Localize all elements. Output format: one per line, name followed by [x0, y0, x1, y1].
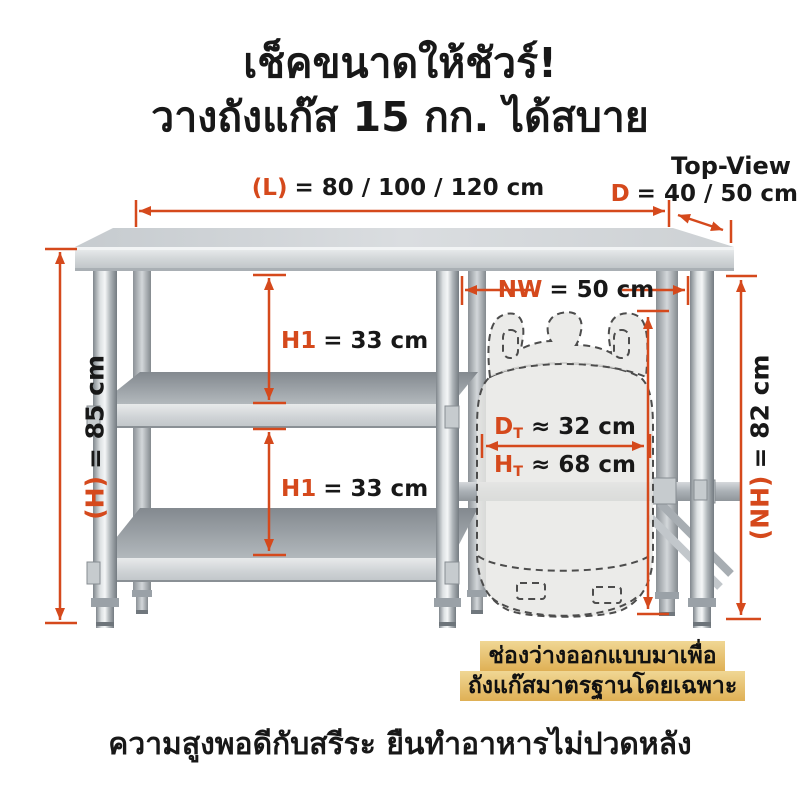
h1-upper-prefix: H1: [281, 328, 316, 354]
tank-diameter-label: DT ≈ 32 cm: [465, 414, 665, 442]
length-prefix: (L): [252, 175, 288, 201]
net-width-value: = 50 cm: [549, 277, 654, 303]
net-height-prefix: (NH): [746, 476, 775, 541]
height-prefix: (H): [81, 476, 110, 520]
length-value: = 80 / 100 / 120 cm: [294, 175, 544, 201]
middle-shelf: [100, 372, 478, 428]
tank-diameter-sym: D: [494, 414, 513, 440]
tank-body: [477, 363, 653, 617]
top-view-label: Top-View: [631, 153, 800, 181]
shelf-gap-upper-label: H1= 33 cm: [281, 328, 428, 354]
note-line1: ช่องว่างออกแบบมาเพื่อ: [480, 641, 724, 671]
bottom-shelf: [100, 508, 478, 582]
shelf-gap-lower-label: H1= 33 cm: [281, 476, 428, 502]
depth-label: D= 40 / 50 cm: [588, 181, 798, 207]
tank-height-label: HT ≈ 68 cm: [465, 452, 665, 480]
h1-lower-prefix: H1: [281, 476, 316, 502]
tank-diameter-sub: T: [513, 426, 523, 442]
length-label: (L)= 80 / 100 / 120 cm: [198, 175, 598, 201]
tabletop: [75, 228, 734, 271]
height-value: = 85 cm: [81, 355, 110, 469]
net-height-label: (NH)= 82 cm: [747, 347, 776, 547]
tank-height-value: ≈ 68 cm: [531, 452, 636, 478]
height-label: (H)= 85 cm: [82, 337, 111, 537]
h1-lower-value: = 33 cm: [323, 476, 428, 502]
note-line2: ถังแก๊สมาตรฐานโดยเฉพาะ: [460, 671, 745, 701]
highlight-note: ช่องว่างออกแบบมาเพื่อ ถังแก๊สมาตรฐานโดยเ…: [430, 641, 775, 701]
net-width-label: NW= 50 cm: [476, 277, 676, 303]
tank-diameter-value: ≈ 32 cm: [531, 414, 636, 440]
infographic: เช็คขนาดให้ชัวร์! วางถังแก๊ส 15 กก. ได้ส…: [0, 0, 800, 800]
net-width-prefix: NW: [498, 277, 543, 303]
depth-value: = 40 / 50 cm: [637, 181, 798, 207]
title-line1: เช็คขนาดให้ชัวร์!: [0, 40, 800, 87]
title-line2: วางถังแก๊ส 15 กก. ได้สบาย: [0, 94, 800, 141]
tank-height-sub: T: [513, 464, 523, 480]
footer-caption: ความสูงพอดีกับสรีระ ยืนทำอาหารไม่ปวดหลัง: [0, 728, 800, 763]
h1-upper-value: = 33 cm: [323, 328, 428, 354]
tank-height-sym: H: [494, 452, 513, 478]
height-dimension: [45, 249, 77, 623]
depth-prefix: D: [611, 181, 630, 207]
net-height-value: = 82 cm: [746, 355, 775, 469]
